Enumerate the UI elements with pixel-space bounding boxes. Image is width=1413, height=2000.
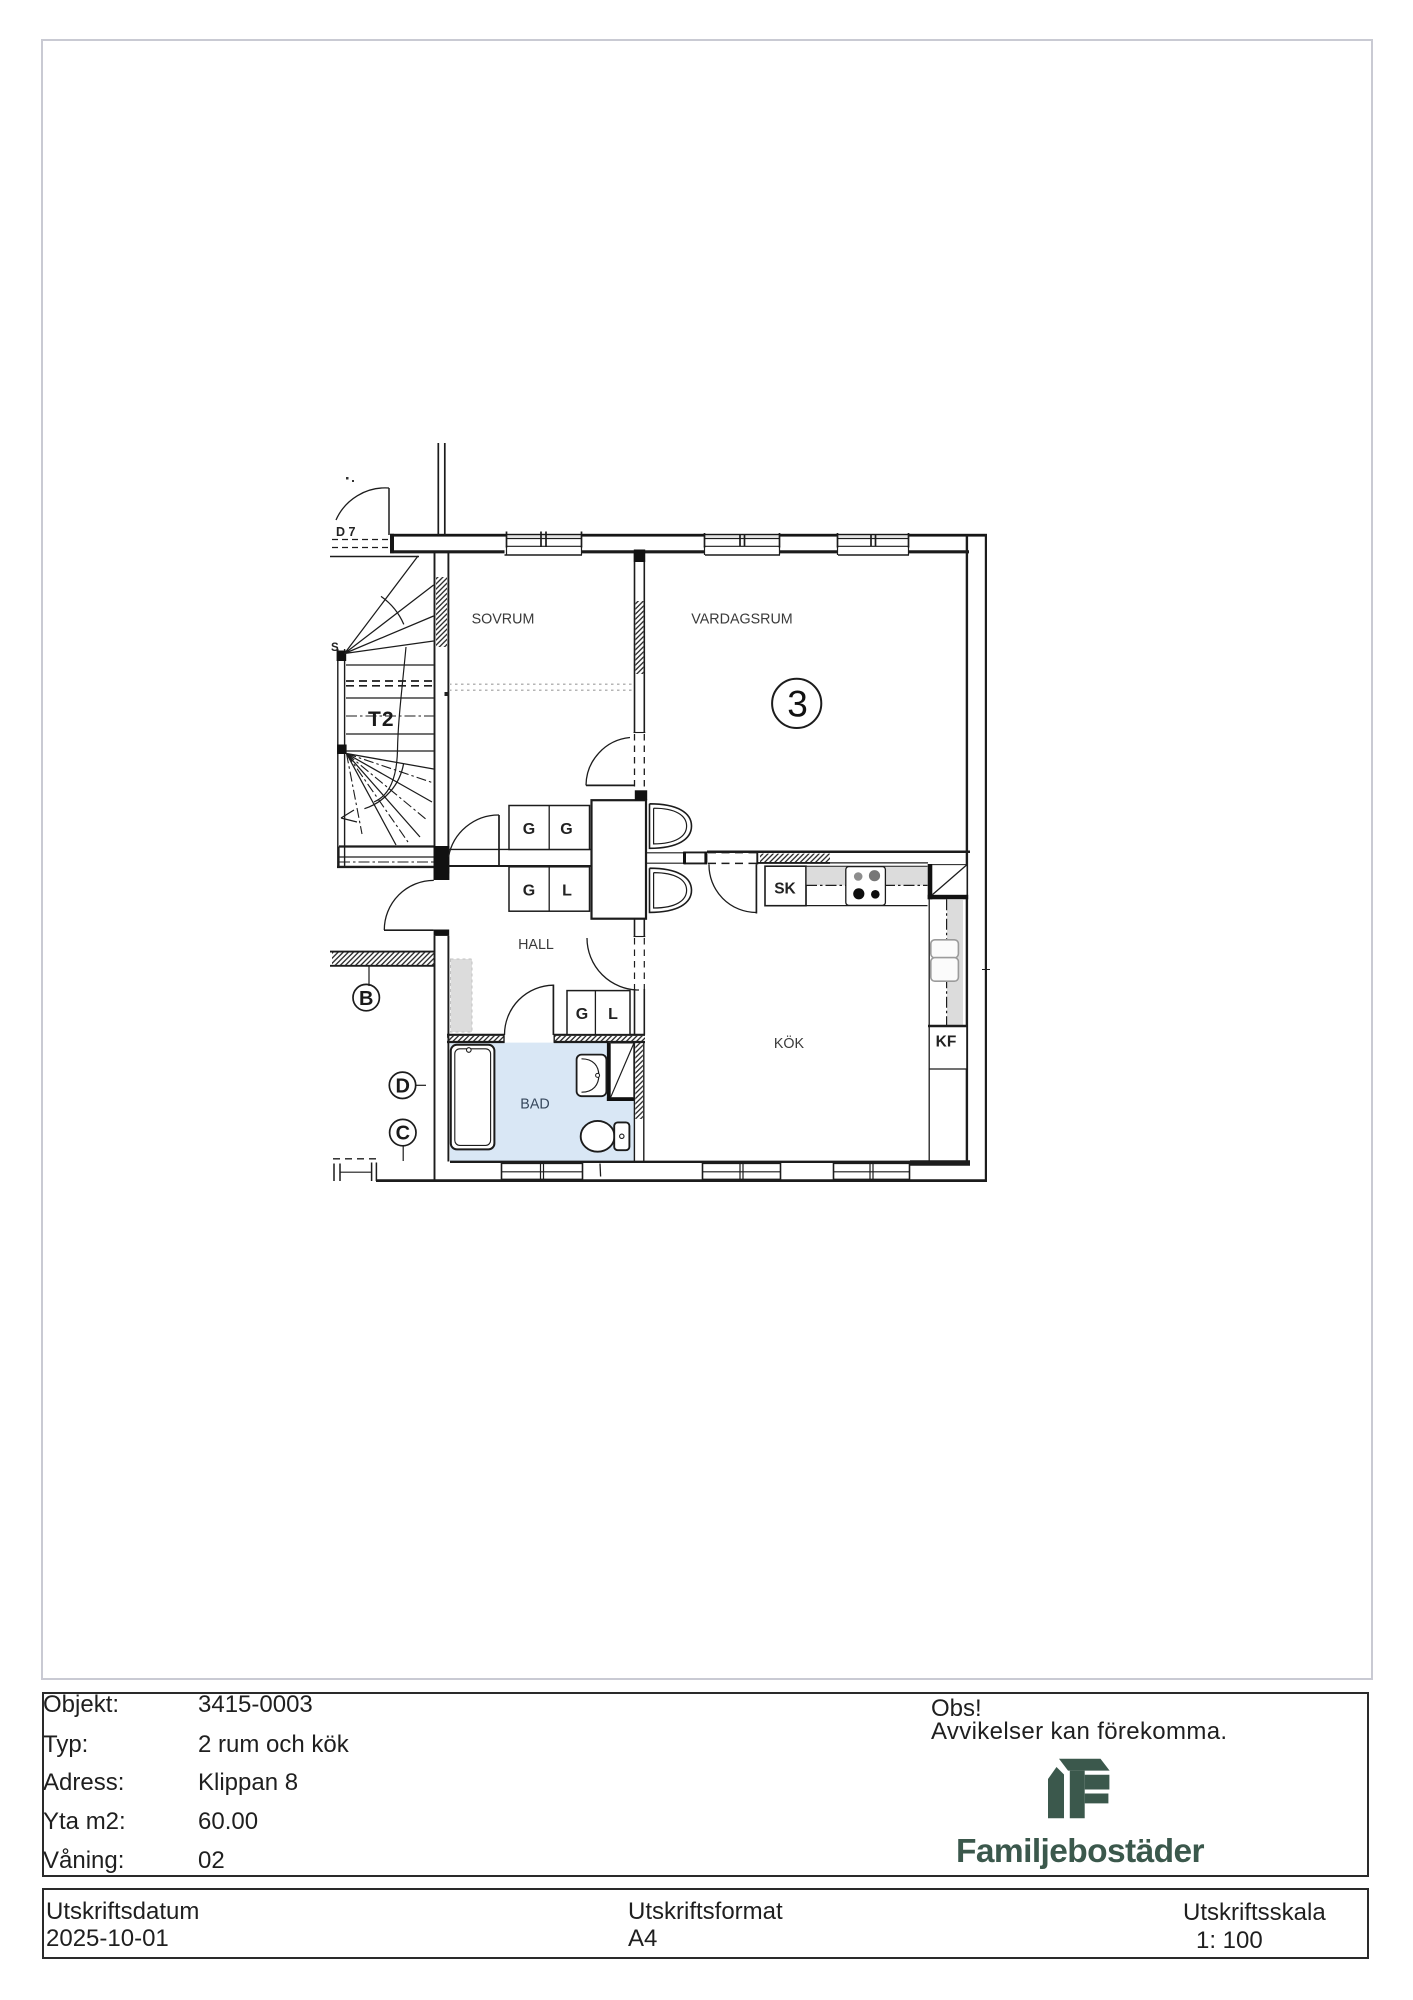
svg-text:L: L: [562, 883, 572, 900]
svg-text:G: G: [523, 821, 535, 838]
svg-text:D 7: D 7: [336, 525, 356, 539]
svg-text:3: 3: [787, 684, 808, 725]
svg-text:HALL: HALL: [518, 937, 554, 953]
svg-text:G: G: [576, 1006, 588, 1023]
svg-text:T2: T2: [368, 708, 395, 731]
svg-text:VARDAGSRUM: VARDAGSRUM: [691, 612, 792, 628]
svg-text:SK: SK: [774, 881, 796, 898]
svg-text:KÖK: KÖK: [774, 1034, 805, 1052]
svg-text:C: C: [396, 1123, 410, 1145]
svg-text:G: G: [560, 821, 572, 838]
svg-text:S: S: [331, 642, 339, 654]
svg-text:SOVRUM: SOVRUM: [472, 612, 535, 628]
svg-text:L: L: [608, 1006, 618, 1023]
svg-text:BAD: BAD: [520, 1097, 549, 1113]
svg-text:B: B: [359, 988, 373, 1010]
svg-text:G: G: [523, 883, 535, 900]
svg-text:D: D: [395, 1075, 409, 1097]
svg-text:KF: KF: [936, 1034, 957, 1051]
